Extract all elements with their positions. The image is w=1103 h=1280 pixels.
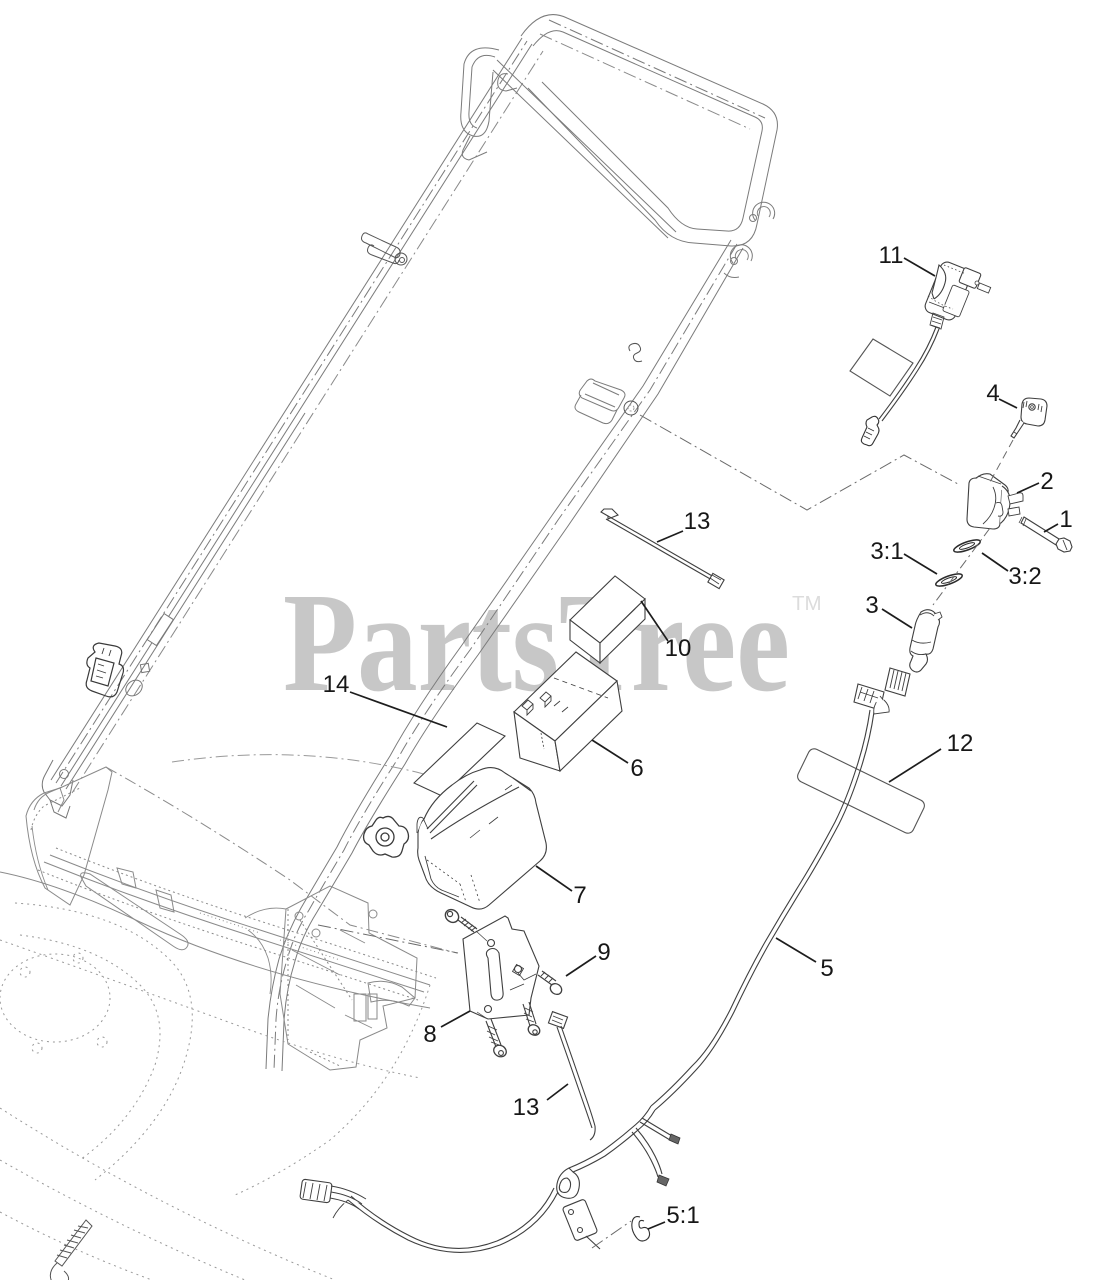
- svg-text:13: 13: [513, 1094, 540, 1121]
- svg-text:1: 1: [1059, 506, 1072, 533]
- svg-text:3:1: 3:1: [870, 538, 903, 565]
- svg-text:10: 10: [665, 635, 692, 662]
- svg-text:9: 9: [597, 939, 610, 966]
- svg-text:11: 11: [879, 242, 904, 269]
- svg-text:3: 3: [865, 592, 878, 619]
- svg-text:8: 8: [423, 1021, 436, 1048]
- svg-text:TM: TM: [792, 592, 822, 615]
- svg-text:12: 12: [947, 730, 974, 757]
- svg-text:5:1: 5:1: [666, 1202, 699, 1229]
- svg-text:5: 5: [820, 955, 833, 982]
- svg-text:7: 7: [573, 882, 586, 909]
- svg-text:4: 4: [986, 380, 999, 407]
- svg-text:3:2: 3:2: [1008, 563, 1041, 590]
- svg-text:13: 13: [684, 508, 711, 535]
- svg-text:2: 2: [1040, 468, 1053, 495]
- svg-text:14: 14: [323, 671, 350, 698]
- svg-text:6: 6: [630, 755, 643, 782]
